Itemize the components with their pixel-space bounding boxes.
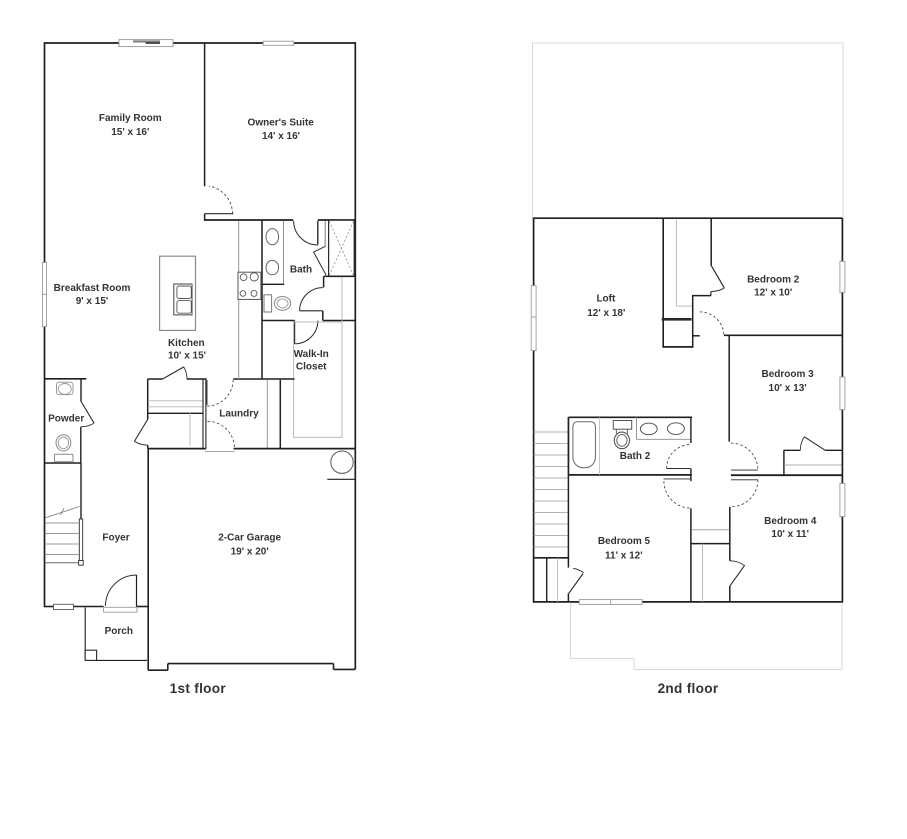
svg-text:Closet: Closet [296, 362, 327, 373]
svg-text:14' x 16': 14' x 16' [262, 131, 300, 142]
svg-text:Bedroom 4: Bedroom 4 [764, 516, 817, 527]
svg-text:12' x 18': 12' x 18' [587, 308, 625, 319]
svg-text:Walk-In: Walk-In [294, 349, 329, 360]
svg-text:Bath: Bath [290, 264, 312, 275]
svg-text:Powder: Powder [48, 414, 84, 425]
svg-text:12' x 10': 12' x 10' [754, 288, 792, 299]
svg-text:9' x 15': 9' x 15' [76, 296, 109, 307]
svg-text:Loft: Loft [596, 294, 616, 305]
svg-text:2-Car Garage: 2-Car Garage [218, 533, 281, 544]
svg-text:2nd floor: 2nd floor [658, 681, 719, 696]
svg-text:Laundry: Laundry [219, 409, 259, 420]
svg-text:Breakfast Room: Breakfast Room [54, 283, 131, 294]
svg-text:10' x 11': 10' x 11' [771, 529, 809, 540]
svg-text:Foyer: Foyer [102, 533, 129, 544]
svg-text:Bedroom 5: Bedroom 5 [598, 536, 651, 547]
svg-text:11' x 12': 11' x 12' [605, 550, 643, 561]
svg-text:Family Room: Family Room [99, 113, 162, 124]
svg-text:Owner's Suite: Owner's Suite [248, 118, 315, 129]
svg-text:10' x 15': 10' x 15' [168, 351, 206, 362]
svg-text:15' x 16': 15' x 16' [111, 127, 149, 138]
svg-text:Porch: Porch [105, 626, 133, 637]
svg-text:Bedroom 2: Bedroom 2 [747, 275, 800, 286]
svg-text:1st floor: 1st floor [170, 681, 227, 696]
svg-text:19' x 20': 19' x 20' [231, 547, 269, 558]
svg-text:Bedroom 3: Bedroom 3 [761, 369, 814, 380]
svg-text:Kitchen: Kitchen [168, 338, 205, 349]
svg-text:10' x 13': 10' x 13' [769, 383, 807, 394]
svg-text:Bath 2: Bath 2 [620, 451, 651, 462]
